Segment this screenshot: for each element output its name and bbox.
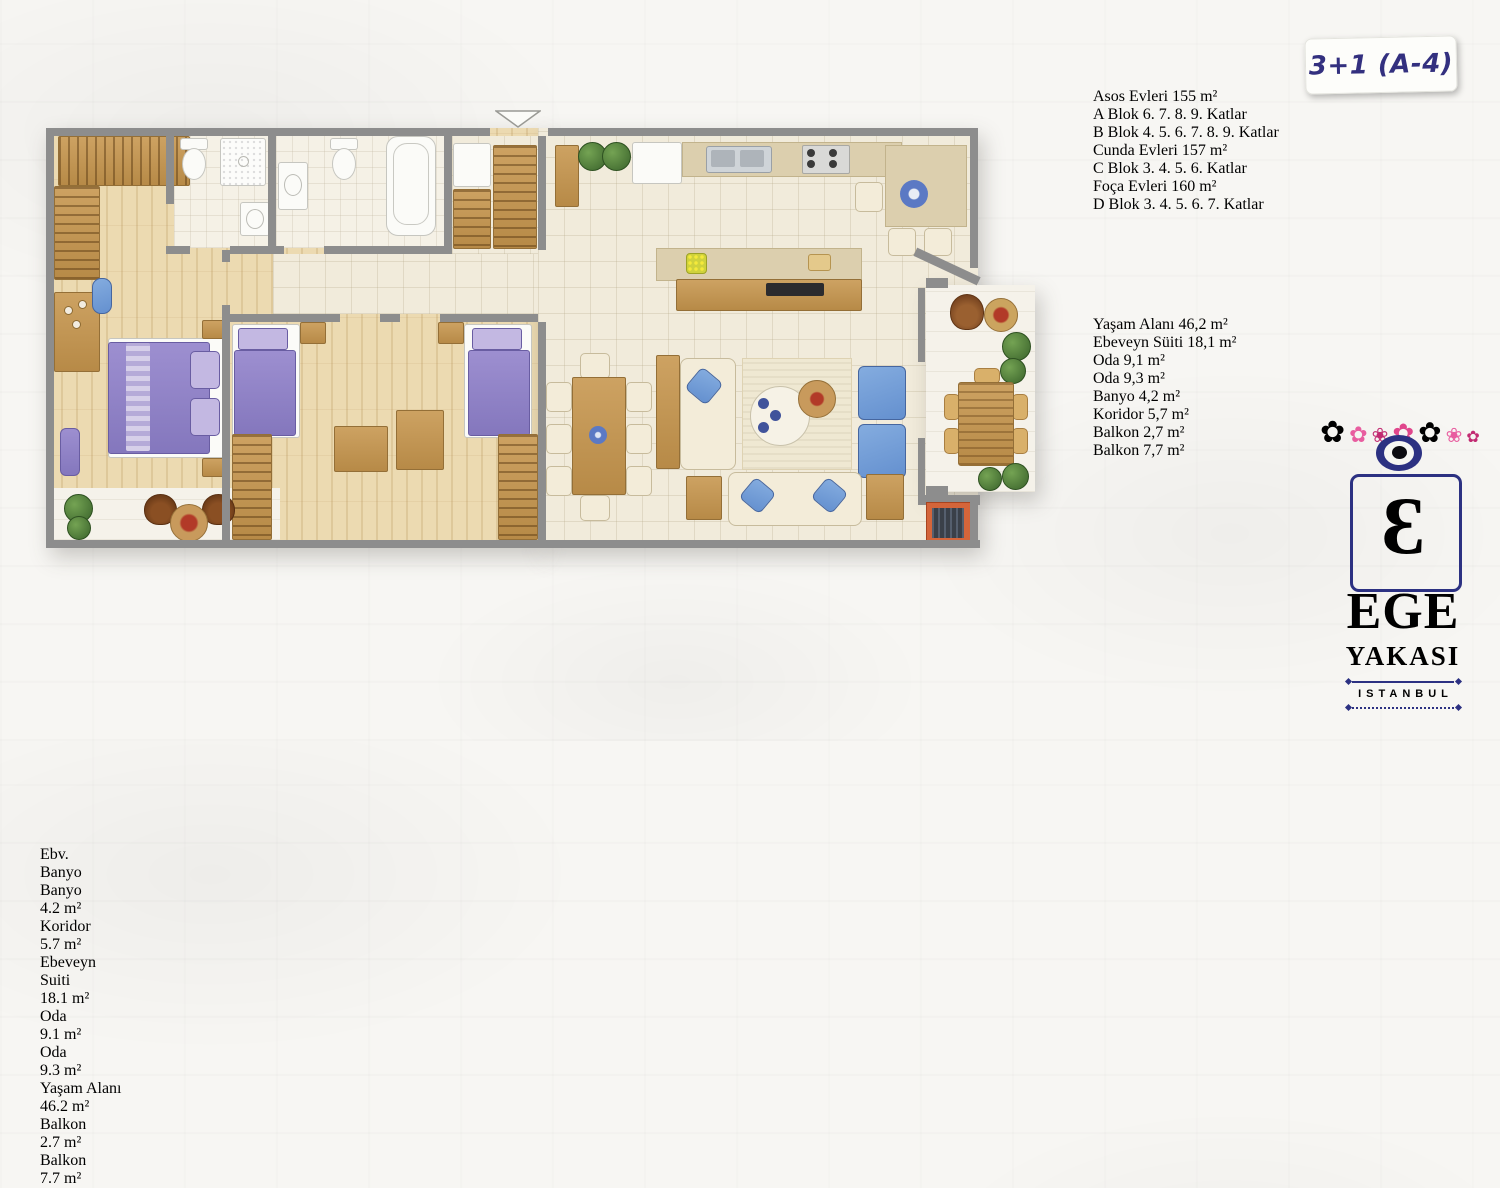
room-name: Suiti (40, 972, 70, 989)
coffee-table-plate (758, 422, 769, 433)
room-name: Balkon (40, 1152, 86, 1169)
bed1-mattress (234, 350, 296, 436)
dresser-knob (72, 320, 81, 329)
wall-ensuite-right (268, 128, 276, 252)
logo-word-ege: EGE (1336, 584, 1470, 640)
shower-drain (238, 156, 249, 167)
wall-wing-divider-lower (538, 322, 546, 540)
label-living: Yaşam Alanı 46.2 m² (40, 1080, 170, 1116)
label-bath: Banyo 4.2 m² (40, 882, 130, 918)
evil-eye-pupil (1392, 446, 1407, 459)
wall-balcony-side-lower (918, 438, 925, 496)
master-pillow (190, 351, 220, 389)
poster-canvas: { "badge": { "label": "3+1 (A-4)" }, "in… (0, 0, 1500, 741)
room-area: 9.3 m² (40, 1062, 81, 1079)
master-bench (60, 428, 80, 476)
dining-chair (626, 382, 652, 412)
wall-bedrooms-top (228, 314, 340, 322)
ensuite-sink-basin (246, 209, 264, 229)
master-stool (92, 278, 112, 314)
bathtub-inner (393, 143, 429, 225)
plan-type-text: 3+1 (A-4) (1309, 48, 1454, 81)
room-list-item: Oda 9,3 m² (1093, 370, 1236, 388)
balcony-door-arc (40, 802, 84, 846)
tv-unit (766, 283, 824, 296)
outdoor-chair (1012, 428, 1028, 454)
desk2 (396, 410, 444, 470)
wall-right-lower (970, 495, 978, 548)
wall-wing-divider-upper (538, 136, 546, 250)
fridge (632, 142, 682, 184)
wall-left (46, 128, 54, 548)
entry-shoe-rack (453, 189, 491, 249)
info-panel: Asos Evleri 155 m² A Blok 6. 7. 8. 9. Ka… (1093, 88, 1279, 214)
logo-rule-diamond (1345, 678, 1352, 685)
bougainvillea-flower-icon: ❀ (1446, 425, 1463, 447)
wall-balcony-side-upper (918, 288, 925, 362)
room-area: 4.2 m² (40, 900, 81, 917)
wall-top-right (548, 128, 978, 136)
room-list-item: Banyo 4,2 m² (1093, 388, 1236, 406)
master-door-arc (40, 588, 80, 628)
bougainvillea-flower-icon: ✿ (1418, 418, 1441, 449)
nightstand-lamp (208, 320, 223, 335)
wall-bedrooms-top (440, 314, 538, 322)
room-area: 7.7 m² (40, 1170, 81, 1187)
info-line: B Blok 4. 5. 6. 7. 8. 9. Katlar (1093, 124, 1279, 142)
side-round-table (798, 380, 836, 418)
bed2-lamp (443, 324, 458, 339)
logo-rule-diamond (1455, 678, 1462, 685)
room-area: 18.1 m² (40, 990, 89, 1007)
balcony-door-glass (40, 404, 45, 450)
logo-word-yakasi: YAKASI (1336, 641, 1470, 671)
label-corridor: Koridor 5.7 m² (40, 918, 150, 954)
ensuite-toilet-bowl (182, 148, 206, 180)
balcony2-plant (1000, 358, 1026, 384)
breakfast-table-plate (900, 180, 928, 208)
ensuite-door-arc (40, 628, 80, 668)
corridor-floor (273, 254, 538, 314)
plan-type-badge: 3+1 (A-4) (1304, 35, 1457, 94)
coffee-table-plate (758, 398, 769, 409)
side-table-dish (693, 486, 713, 506)
wall-ensuite-bottom (230, 246, 276, 254)
wall-ensuite-bottom (166, 246, 190, 254)
cooktop-burner (829, 149, 837, 157)
lounge-chair (950, 294, 984, 330)
living-tall-cabinet (656, 355, 680, 469)
entry-wardrobe (493, 145, 537, 249)
wall-master-right-lower (222, 305, 230, 540)
dresser-knob (78, 300, 87, 309)
wall-bedrooms-top (380, 314, 400, 322)
bed1-lamp (305, 324, 320, 339)
outdoor-chair (1012, 394, 1028, 420)
dining-chair (546, 466, 572, 496)
room-name: Banyo (40, 864, 82, 881)
coffee-table-plate (770, 410, 781, 421)
room-area: 9.1 m² (40, 1026, 81, 1043)
desk1 (334, 426, 388, 472)
balcony2-plant (1002, 463, 1029, 490)
dining-chair (546, 424, 572, 454)
balcony2-wall-stub (926, 486, 948, 496)
room-list-item: Balkon 7,7 m² (1093, 442, 1236, 460)
room-name: Ebeveyn (40, 954, 96, 971)
wall-bottom (46, 540, 980, 548)
info-line: A Blok 6. 7. 8. 9. Katlar (1093, 106, 1279, 124)
room-list-panel: Yaşam Alanı 46,2 m² Ebeveyn Süiti 18,1 m… (1093, 316, 1236, 460)
label-ensuite-bath: Ebv. Banyo (40, 846, 110, 882)
logo-monogram: Ɛ (1350, 474, 1456, 582)
dining-chair (580, 495, 610, 521)
fireplace-grate (932, 508, 964, 538)
room-list-item: Koridor 5,7 m² (1093, 406, 1236, 424)
logo-word-istanbul: ISTANBUL (1336, 688, 1470, 700)
bedroom1-door-arc (40, 714, 80, 754)
room-name: Balkon (40, 1116, 86, 1133)
room-list-item: Yaşam Alanı 46,2 m² (1093, 316, 1236, 334)
wall-bath-bottom (324, 246, 450, 254)
entrance-marker (495, 110, 541, 128)
bedroom2-door-arc (40, 758, 80, 798)
lemon-bowl (686, 253, 707, 274)
label-bedroom1: Oda 9.1 m² (40, 1008, 110, 1044)
wall-right-upper (970, 128, 978, 268)
nightstand-lamp (208, 459, 223, 474)
bath-door-arc (40, 668, 82, 710)
room-name: Yaşam Alanı (40, 1080, 122, 1097)
room-name: Banyo (40, 882, 82, 899)
logo-rule-bottom (1352, 707, 1454, 709)
info-line: Asos Evleri 155 m² (1093, 88, 1279, 106)
ege-yakasi-logo: Ɛ ✿ ✿ ❀ ✿ ✿ ❀ ✿ EGE YAKASI ISTANBUL (1320, 415, 1480, 725)
bed1-pillow (238, 328, 288, 350)
label-large-balcony: Balkon 7.7 m² (40, 1152, 130, 1188)
dining-chair (580, 353, 610, 379)
label-bedroom2: Oda 9.3 m² (40, 1044, 110, 1080)
balcony2-railing-right (40, 190, 44, 400)
bed2-mattress (468, 350, 530, 436)
cooktop-burner (807, 160, 815, 168)
outdoor-table (958, 382, 1014, 466)
room-name: Oda (40, 1044, 67, 1061)
sink-basin (740, 150, 764, 167)
logo-rule-top (1352, 681, 1454, 683)
wardrobe2 (498, 434, 538, 540)
bath-toilet-bowl (332, 148, 356, 180)
bougainvillea-flower-icon: ✿ (1466, 429, 1479, 446)
room-area: 2.7 m² (40, 1134, 81, 1151)
balcony2-wall-stub (926, 278, 948, 288)
balcony-table (170, 504, 208, 542)
info-line: Cunda Evleri 157 m² (1093, 142, 1279, 160)
bath-sink-basin (284, 174, 302, 196)
balcony2-plant (978, 467, 1002, 491)
bougainvillea-flower-icon: ✿ (1320, 416, 1345, 449)
dining-centerpiece (589, 426, 607, 444)
wall-master-right-upper (222, 250, 230, 262)
entry-door-arc (40, 534, 94, 588)
room-list-item: Oda 9,1 m² (1093, 352, 1236, 370)
info-line: Foça Evleri 160 m² (1093, 178, 1279, 196)
breakfast-chair (888, 228, 916, 256)
breakfast-chair (855, 182, 883, 212)
master-pillow (190, 398, 220, 436)
room-list-item: Ebeveyn Süiti 18,1 m² (1093, 334, 1236, 352)
info-line: C Blok 3. 4. 5. 6. Katlar (1093, 160, 1279, 178)
logo-rule-diamond (1345, 704, 1352, 711)
dining-chair (546, 382, 572, 412)
label-small-balcony: Balkon 2.7 m² (40, 1116, 110, 1152)
room-list-item: Balkon 2,7 m² (1093, 424, 1236, 442)
kitchen-plant (602, 142, 631, 171)
sink-basin (711, 150, 735, 167)
wall-bath-right (444, 136, 452, 254)
armchair (858, 424, 906, 478)
bread-board (808, 254, 831, 271)
room-name: Koridor (40, 918, 91, 935)
logo-rule-diamond (1455, 704, 1462, 711)
bed2-pillow (472, 328, 522, 350)
entry-cabinet (453, 143, 491, 187)
balcony2-plant (1002, 332, 1031, 361)
cooktop-burner (807, 149, 815, 157)
cooktop-burner (829, 160, 837, 168)
master-bed-runner (126, 343, 150, 451)
master-window (40, 450, 45, 530)
dresser-knob (64, 306, 73, 315)
wardrobe1 (232, 434, 272, 540)
room-name: Oda (40, 1008, 67, 1025)
master-wardrobe-left (54, 186, 100, 280)
room-area: 46.2 m² (40, 1098, 89, 1115)
dining-chair (626, 466, 652, 496)
label-master: Ebeveyn Suiti 18.1 m² (40, 954, 150, 1008)
floor-plan: Ebv. Banyo Banyo 4.2 m² Koridor 5.7 m² E… (40, 110, 1050, 590)
room-name: Ebv. (40, 846, 69, 863)
bougainvillea-flower-icon: ✿ (1349, 422, 1367, 447)
room-area: 5.7 m² (40, 936, 81, 953)
living-cabinet (555, 145, 579, 207)
dining-chair (626, 424, 652, 454)
side-table-dish (874, 485, 894, 505)
armchair (858, 366, 906, 420)
flower-table (984, 298, 1018, 332)
info-line: D Blok 3. 4. 5. 6. 7. Katlar (1093, 196, 1279, 214)
wall-bath-bottom (276, 246, 284, 254)
wall-ensuite-left (166, 128, 174, 204)
